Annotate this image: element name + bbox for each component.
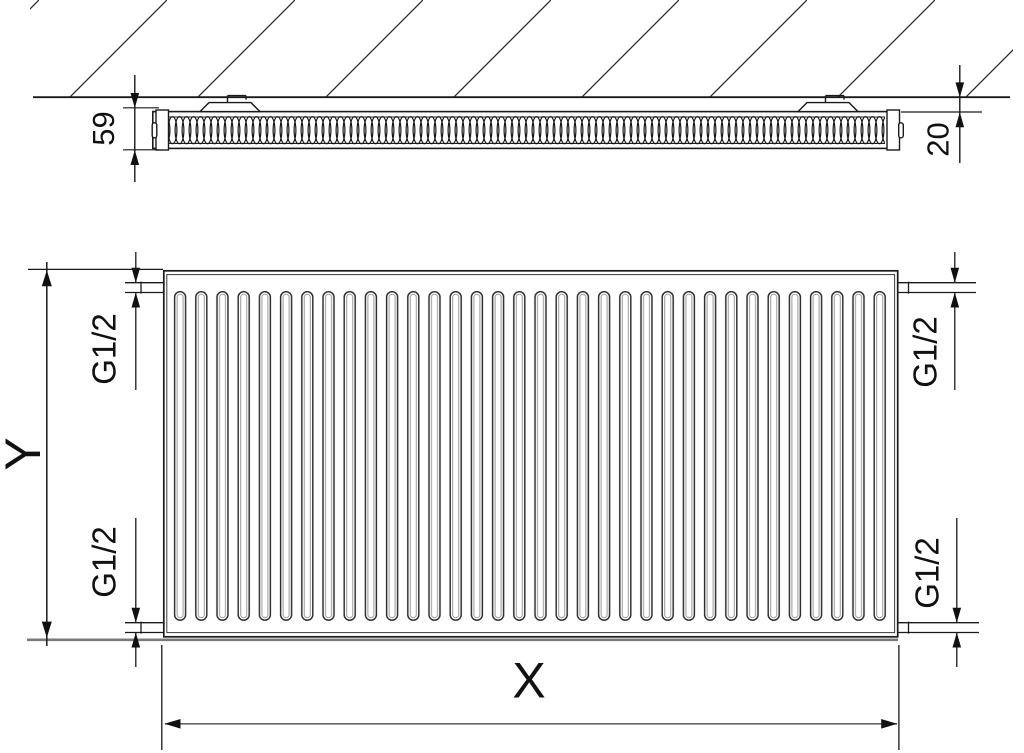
arrowheads <box>951 268 960 308</box>
convector-fin-coil <box>169 114 885 146</box>
arrowheads <box>132 608 141 648</box>
connection-stub-bottom-left <box>125 622 164 634</box>
connection-stub-top-left <box>125 282 164 294</box>
connection-stub-top-right <box>898 282 976 294</box>
connection-stub-bottom-right <box>898 622 979 634</box>
connection-size-label-bottom-right: G1/2 <box>909 537 946 609</box>
connection-dimension-top-left: G1/2 <box>86 252 141 390</box>
width-dimension-label: X <box>512 653 545 709</box>
height-dimension: Y <box>0 262 163 646</box>
end-fitting-right <box>887 110 903 150</box>
connection-dimension-bottom-left: G1/2 <box>86 518 141 667</box>
connection-dimension-bottom-right: G1/2 <box>909 518 962 667</box>
connection-size-label-top-right: G1/2 <box>907 316 944 388</box>
connection-size-label-top-left: G1/2 <box>86 313 123 385</box>
panel-grooves <box>170 291 891 621</box>
height-dimension-label: Y <box>0 437 51 470</box>
width-dimension: X <box>162 645 899 750</box>
depth-dimension-label: 59 <box>86 111 121 145</box>
wall-gap-dimension-label: 20 <box>920 122 955 156</box>
side-view: 59 20 <box>30 0 1013 182</box>
front-view: G1/2 G1/2 G1/2 G1/2 Y <box>0 252 979 750</box>
radiator-technical-drawing: 59 20 G1/2 G1/2 <box>0 0 1024 753</box>
arrowheads <box>953 608 962 648</box>
connection-dimension-top-right: G1/2 <box>907 252 960 390</box>
drawing-svg: 59 20 G1/2 G1/2 <box>0 0 1024 753</box>
connection-size-label-bottom-left: G1/2 <box>86 526 123 598</box>
arrowheads <box>132 268 141 308</box>
wall-hatching <box>30 0 1013 97</box>
